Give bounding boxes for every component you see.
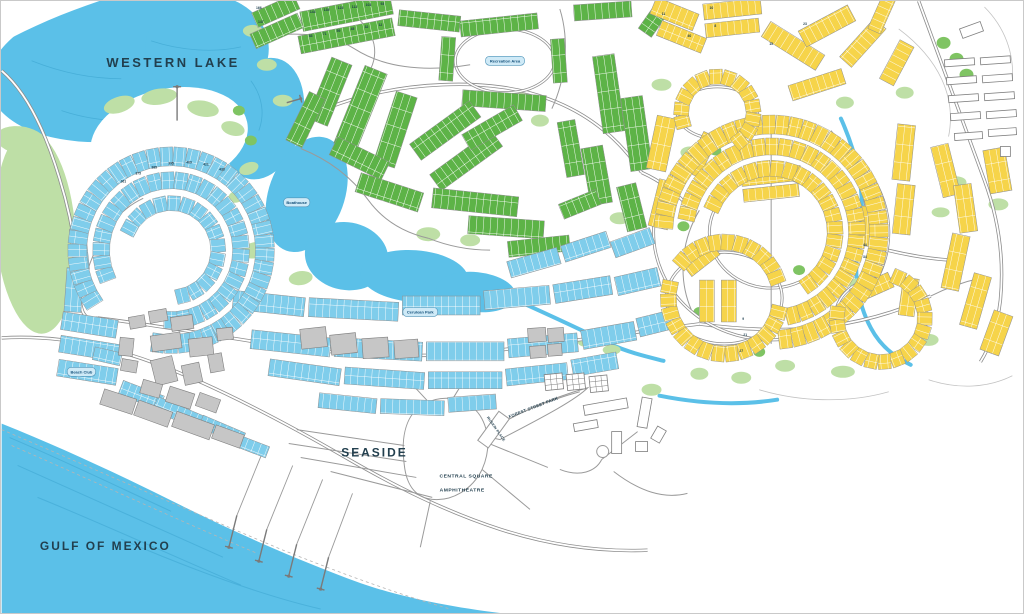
lot-arc-y	[757, 160, 772, 177]
lot-block-g	[573, 1, 632, 21]
building-outline	[946, 76, 976, 85]
building	[547, 327, 564, 342]
lot-arc-y	[826, 221, 843, 235]
building	[128, 315, 146, 330]
lot-block-y	[788, 69, 846, 101]
lot-block-y	[953, 183, 977, 233]
label-amphitheatre: AMPHITHEATRE	[440, 487, 485, 493]
lot-number: 123	[338, 6, 344, 10]
lot-arc-y	[765, 138, 778, 155]
lot-block-b	[426, 342, 504, 361]
building-outline	[986, 110, 1016, 119]
building-outline	[980, 56, 1010, 65]
lot-arc-y	[829, 306, 845, 321]
building	[527, 327, 546, 342]
lot-block-b	[581, 321, 637, 349]
building-outline	[589, 375, 609, 393]
lot-number: 45	[351, 27, 355, 31]
lot-number: 59	[337, 29, 341, 33]
lot-block-b	[553, 276, 613, 304]
label-seaside: SEASIDE	[341, 446, 407, 460]
svg-text:Recreation Area: Recreation Area	[490, 58, 521, 63]
lot-number: 361	[120, 179, 126, 183]
building	[150, 356, 178, 386]
building-outline	[583, 398, 628, 415]
lot-block-y	[868, 1, 896, 34]
building-outline	[1000, 147, 1010, 157]
lot-arc-y	[660, 294, 676, 308]
lot-arc-b	[68, 244, 87, 257]
lot-arc-y	[751, 138, 766, 157]
lot-block-b	[268, 359, 341, 386]
lot-block-g	[374, 91, 418, 168]
lot-block-b	[614, 267, 661, 295]
building	[170, 315, 194, 332]
lot-arc-b	[167, 196, 181, 212]
building	[362, 337, 389, 359]
lot-block-g	[616, 183, 646, 232]
lot-number: 409	[186, 160, 192, 164]
building-outline	[950, 112, 980, 121]
lot-block-b	[344, 367, 425, 389]
lot-block-y	[892, 124, 916, 181]
lot-block-g	[558, 189, 601, 219]
svg-text:Boathouse: Boathouse	[286, 200, 307, 205]
map-pill-beach-club: Beach Club	[67, 367, 95, 376]
lot-arc-b	[93, 254, 112, 270]
lot-number: 433	[219, 167, 225, 171]
building	[330, 333, 358, 356]
building-outline	[573, 420, 598, 432]
map-pill-boathouse: Boathouse	[284, 198, 310, 207]
lot-number: 83	[309, 34, 313, 38]
lot-block-g	[550, 38, 567, 83]
building	[195, 392, 220, 413]
lot-number: 135	[324, 8, 330, 12]
lot-block-b	[308, 298, 399, 322]
lot-block-b	[428, 372, 502, 389]
lot-number: 103	[366, 3, 372, 7]
building-outline	[651, 426, 667, 443]
lot-number: 44	[863, 243, 867, 247]
lot-block-b	[318, 393, 377, 414]
lot-block-b	[60, 312, 118, 338]
map-pill-recreation-area: Recreation Area	[485, 56, 524, 65]
building	[208, 353, 225, 373]
lot-block-y	[705, 18, 760, 38]
lot-number: 9	[742, 317, 744, 321]
building-outline	[954, 132, 982, 141]
lot-number: 34	[863, 255, 867, 259]
building-outline	[988, 128, 1016, 137]
building-outline	[612, 432, 622, 454]
lot-number: 10	[709, 6, 713, 10]
building-outline	[944, 58, 974, 67]
lot-number: 143	[310, 10, 316, 14]
label-gulf-of-mexico: GULF OF MEXICO	[40, 539, 171, 553]
lot-number: 421	[203, 162, 209, 166]
lot-block-g	[592, 54, 625, 134]
lot-block-y	[743, 184, 800, 203]
map-pill-cerulean-park: Cerulean Park	[403, 307, 438, 316]
lot-arc-b	[210, 239, 226, 253]
lot-number: 32	[365, 25, 369, 29]
building-outline	[959, 21, 983, 38]
lot-arc-y	[917, 312, 932, 325]
lot-number: 40	[688, 34, 692, 38]
lot-number: 375	[135, 171, 141, 175]
lot-block-g	[355, 173, 424, 212]
building	[188, 337, 214, 357]
lot-arc-y	[762, 115, 775, 134]
lot-block-y	[892, 184, 915, 235]
building	[181, 362, 203, 385]
label-central-square: CENTRAL SQUARE	[440, 473, 493, 479]
building-outline	[566, 373, 586, 391]
lot-arc-b	[68, 256, 89, 272]
lot-block-g	[439, 36, 456, 81]
lot-block-g	[557, 119, 584, 177]
lot-block-g	[398, 10, 461, 32]
lot-block-y	[699, 280, 714, 322]
building	[530, 345, 547, 358]
building	[120, 359, 138, 374]
lot-number: 113	[352, 5, 358, 9]
building	[216, 327, 233, 341]
lot-number: 23	[803, 22, 807, 26]
lot-block-g	[468, 216, 545, 239]
lot-arc-y	[877, 354, 891, 370]
lot-number: 15	[769, 42, 773, 46]
lot-arc-y	[869, 224, 888, 237]
lot-number: 166	[256, 6, 262, 10]
lot-arc-y	[660, 279, 678, 295]
lot-number: 11	[662, 12, 666, 16]
building	[547, 343, 562, 356]
lot-block-y	[721, 280, 736, 322]
lot-number: 93	[381, 2, 385, 6]
lot-number: 21	[743, 333, 747, 337]
lot-block-y	[980, 310, 1013, 356]
lot-block-b	[571, 352, 619, 377]
building-outline	[984, 92, 1014, 101]
building-outline	[544, 373, 564, 391]
lot-arc-y	[777, 329, 792, 349]
lot-arc-y	[848, 222, 866, 236]
lot-number: 395	[168, 161, 174, 165]
lot-block-b	[380, 399, 444, 416]
lot-arc-b	[254, 234, 274, 249]
lot-number: 8	[714, 24, 716, 28]
lot-number: 385	[151, 165, 157, 169]
lot-block-y	[646, 115, 677, 172]
lot-number: 27	[739, 349, 743, 353]
lot-number: 71	[323, 32, 327, 36]
lot-block-b	[610, 228, 655, 258]
svg-text:Cerulean Park: Cerulean Park	[407, 310, 434, 315]
lot-block-g	[431, 188, 518, 217]
building	[300, 327, 328, 350]
building-outline	[982, 74, 1012, 83]
lot-arc-b	[255, 248, 275, 262]
lot-number: 12	[379, 23, 383, 27]
lot-arc-b	[161, 172, 175, 190]
lot-arc-y	[829, 318, 846, 333]
lot-block-y	[959, 273, 991, 330]
label-western-lake: WESTERN LAKE	[106, 55, 239, 70]
building	[118, 337, 134, 356]
building-outline	[636, 442, 648, 452]
community-plat-map: 1431351231131039383715945321216614711401…	[0, 0, 1024, 614]
building-outline	[637, 397, 652, 428]
lot-block-y	[879, 40, 914, 86]
building	[394, 339, 419, 359]
lot-block-y	[703, 1, 762, 20]
lot-arc-b	[231, 235, 249, 250]
map-canvas: 1431351231131039383715945321216614711401…	[1, 1, 1023, 613]
lot-arc-y	[707, 234, 722, 252]
lot-arc-y	[868, 210, 889, 225]
lot-arc-y	[724, 345, 739, 362]
lot-number: 147	[258, 20, 264, 24]
svg-text:Beach Club: Beach Club	[70, 369, 92, 374]
lot-arc-b	[93, 242, 110, 255]
lot-block-b	[448, 394, 497, 412]
